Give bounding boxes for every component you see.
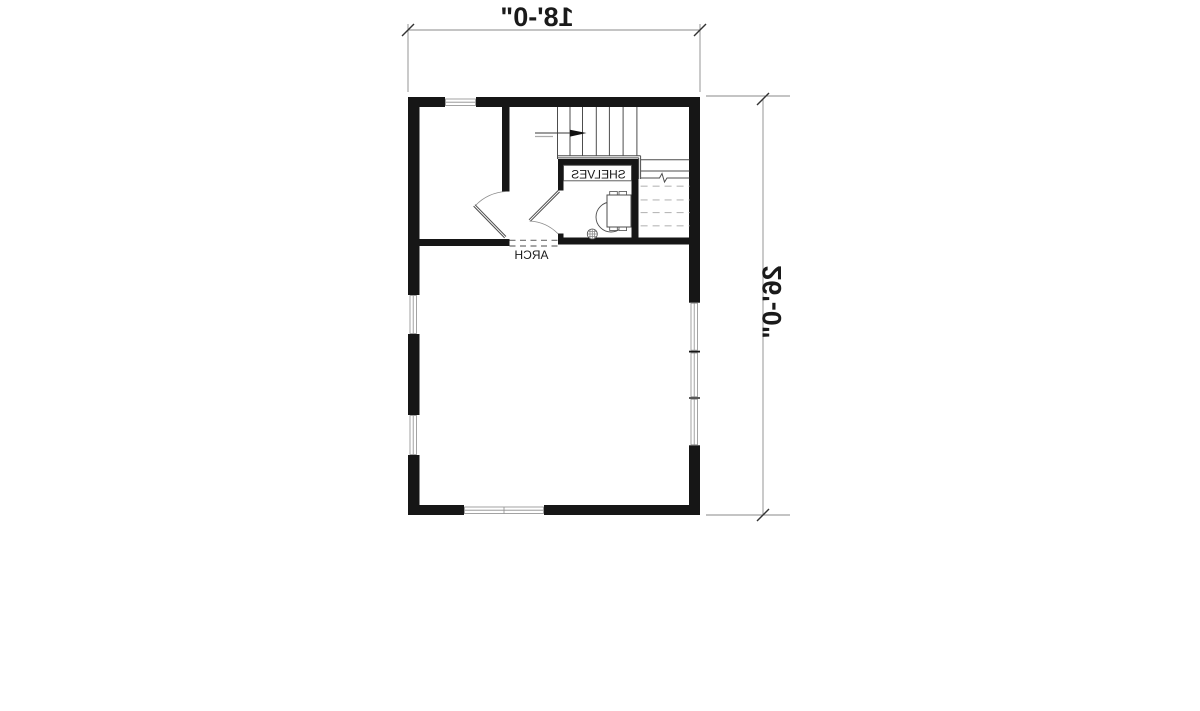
svg-text:26'-0": 26'-0" — [757, 265, 787, 338]
svg-text:SHELVES: SHELVES — [571, 168, 625, 182]
svg-text:18'-0": 18'-0" — [500, 2, 573, 32]
svg-text:ARCH: ARCH — [514, 248, 548, 262]
